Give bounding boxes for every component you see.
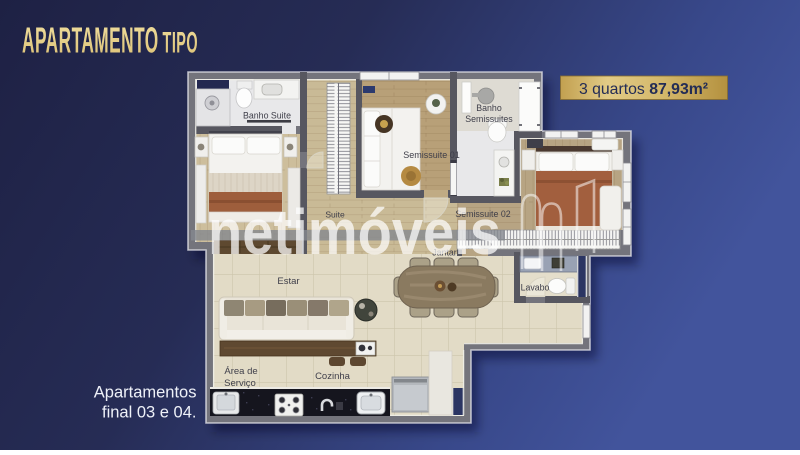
svg-text:APARTAMENTOTIPO: APARTAMENTOTIPO	[22, 19, 198, 60]
svg-text:Apartamentos: Apartamentos	[94, 384, 197, 402]
svg-text:Cozinha: Cozinha	[315, 371, 351, 382]
svg-text:Serviço: Serviço	[224, 378, 256, 389]
svg-text:Área de: Área de	[224, 366, 257, 377]
svg-text:Semissuite 01: Semissuite 01	[403, 150, 460, 160]
svg-text:Semissuites: Semissuites	[465, 114, 513, 124]
svg-text:final 03 e 04.: final 03 e 04.	[102, 404, 197, 422]
svg-text:Estar: Estar	[277, 276, 299, 287]
svg-text:Banho Suite: Banho Suite	[243, 110, 291, 120]
svg-text:Banho: Banho	[476, 103, 502, 113]
svg-text:Lavabo: Lavabo	[521, 283, 550, 293]
svg-text:3 quartos 87,93m²: 3 quartos 87,93m²	[579, 81, 708, 98]
svg-text:netimóveis: netimóveis	[208, 196, 501, 268]
